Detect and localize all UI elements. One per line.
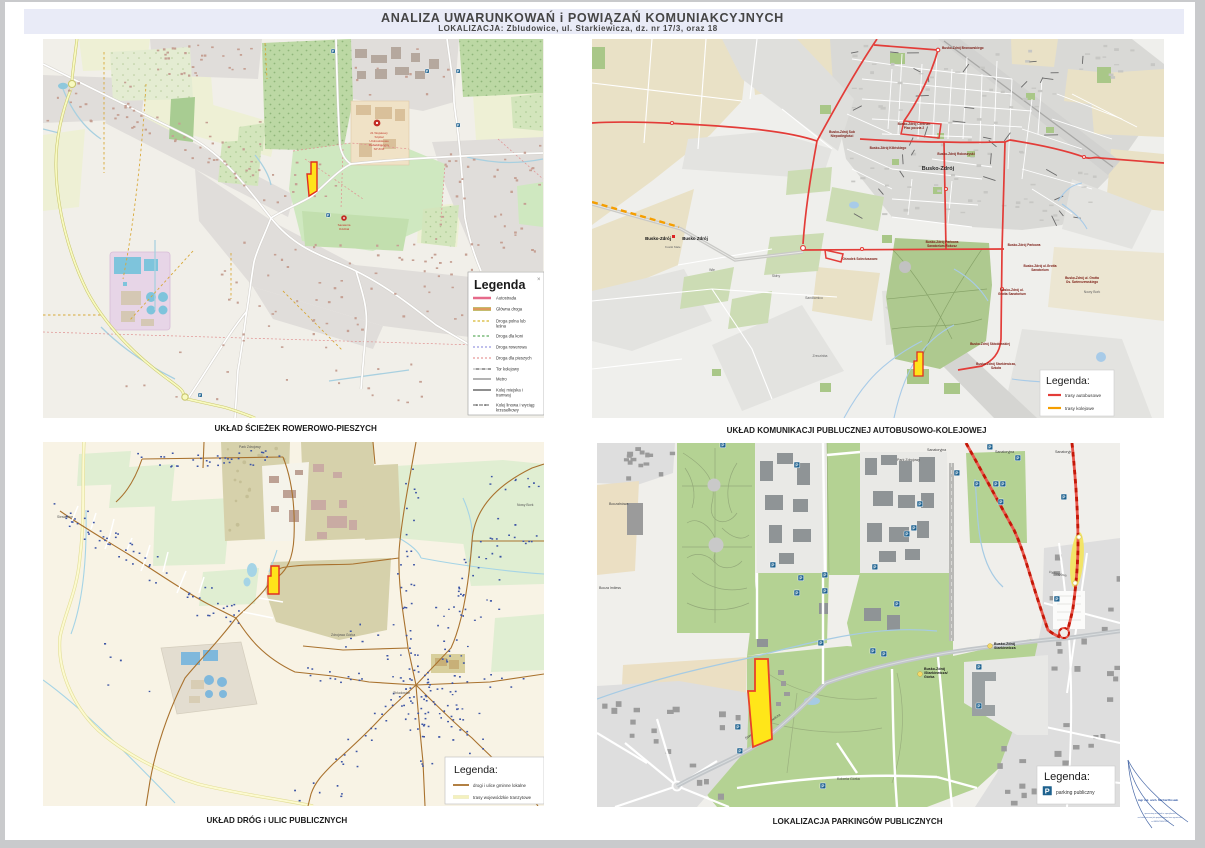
svg-text:Zreczinba: Zreczinba [813,354,828,358]
svg-text:Droga dla pieszych: Droga dla pieszych [496,356,532,361]
svg-text:drogi i ulice gminne lokalne: drogi i ulice gminne lokalne [473,783,527,788]
svg-text:P: P [905,532,908,537]
svg-text:Zdrojowa Górka: Zdrojowa Górka [331,633,355,637]
svg-text:Legenda:: Legenda: [1046,375,1090,387]
svg-text:Skłny: Skłny [772,274,781,278]
svg-text:P: P [823,573,826,578]
svg-text:Górka: Górka [924,675,935,679]
svg-text:trasy kolejowe: trasy kolejowe [1065,406,1095,411]
svg-text:mgr inż. arch. Michał Rosało: mgr inż. arch. Michał Rosało [1138,798,1179,802]
svg-text:Busko-Zdrój Rokoszyski: Busko-Zdrój Rokoszyski [937,152,974,156]
svg-text:Busko-Zdrój Skłodowskiej: Busko-Zdrój Skłodowskiej [970,342,1010,346]
svg-text:P: P [999,500,1002,505]
svg-text:Oddział: Oddział [339,227,350,231]
svg-text:krzesełkowy: krzesełkowy [496,408,520,413]
svg-text:Os. Świerczewskiego: Os. Świerczewskiego [1066,279,1098,284]
svg-text:P: P [819,641,822,646]
svg-text:Legenda: Legenda [474,278,526,292]
svg-text:P: P [799,576,802,581]
svg-text:Szkoła: Szkoła [991,366,1001,370]
svg-text:Sanatorium: Sanatorium [1031,268,1049,272]
svg-text:leśna: leśna [496,324,507,329]
svg-text:Busko-Zdrój Kilińskiego: Busko-Zdrój Kilińskiego [870,146,907,150]
svg-text:Grotta Sanatorium: Grotta Sanatorium [998,292,1026,296]
svg-text:Busko Zdrój: Busko Zdrój [682,236,708,241]
svg-text:P: P [895,602,898,607]
svg-text:Sandłamico: Sandłamico [805,296,823,300]
svg-text:parking publiczny: parking publiczny [1056,790,1095,796]
svg-text:uprawniony architekt o specjal: uprawniony architekt o specjalności [1144,812,1176,815]
svg-text:P: P [882,652,885,657]
svg-text:Niepodległości: Niepodległości [831,134,854,138]
svg-text:Busko-Zdrój Bronowskiego: Busko-Zdrój Bronowskiego [942,46,984,50]
svg-text:Kolonia Górka: Kolonia Górka [837,777,860,781]
svg-text:P: P [1016,456,1019,461]
svg-text:P: P [873,565,876,570]
svg-text:P: P [912,526,915,531]
svg-text:Busko-Zdrój Parkowa: Busko-Zdrój Parkowa [1008,243,1041,247]
svg-text:P: P [795,591,798,596]
svg-text:P: P [1045,786,1050,795]
svg-text:P: P [1001,482,1004,487]
svg-text:×: × [537,277,541,283]
svg-text:P: P [955,471,958,476]
svg-text:Główna droga: Główna droga [496,307,523,312]
svg-text:Busko-Zdrój: Busko-Zdrój [645,236,671,241]
svg-text:Tor kolejowy: Tor kolejowy [496,367,520,372]
svg-text:P: P [738,749,741,754]
svg-text:Sanatorium Rokosz: Sanatorium Rokosz [927,244,957,248]
svg-text:Droga rowerowa: Droga rowerowa [496,345,527,350]
svg-text:Legenda:: Legenda: [1044,771,1090,783]
svg-text:Nowy Bork: Nowy Bork [517,503,534,507]
svg-text:tramwaj: tramwaj [496,393,511,398]
svg-text:P: P [821,784,824,789]
svg-text:Park Zdrojowy: Park Zdrojowy [239,445,261,449]
svg-text:Sanatoryjna: Sanatoryjna [995,450,1014,454]
svg-text:Metro: Metro [496,377,507,382]
svg-text:P: P [1055,597,1058,602]
svg-text:P: P [795,463,798,468]
svg-text:P: P [823,589,826,594]
svg-text:P: P [975,482,978,487]
svg-text:P: P [771,563,774,568]
svg-text:Sanatoryjna: Sanatoryjna [1055,450,1074,454]
svg-text:Ośrodek Solecłuszowo: Ośrodek Solecłuszowo [843,257,878,261]
svg-text:Bocza lmiless: Bocza lmiless [599,586,621,590]
svg-text:trasy autobusowe: trasy autobusowe [1065,393,1101,398]
svg-text:Busko-Zdrój: Busko-Zdrój [922,166,955,172]
svg-text:P: P [988,445,991,450]
svg-text:Sanatoryjna: Sanatoryjna [927,448,946,452]
svg-text:Park Zdrojowy: Park Zdrojowy [897,458,920,462]
svg-text:P: P [918,502,921,507]
svg-text:P: P [736,725,739,730]
svg-text:SP ZOZ: SP ZOZ [374,147,385,151]
svg-text:Plac poczta 2: Plac poczta 2 [904,126,924,130]
svg-text:Włe: Włe [709,268,715,272]
svg-text:Autostrada: Autostrada [496,296,517,301]
svg-text:P: P [1062,495,1065,500]
svg-text:architektonicznej do projektow: architektonicznej do projektowania bez o… [1138,816,1183,819]
svg-text:Starkiewicza: Starkiewicza [994,646,1017,650]
svg-text:P: P [977,704,980,709]
svg-text:Boczałnówa: Boczałnówa [609,502,628,506]
svg-text:Siesławice: Siesławice [57,515,73,519]
svg-text:Legenda:: Legenda: [454,764,498,776]
svg-text:P: P [721,443,724,448]
svg-text:P: P [977,665,980,670]
svg-text:P: P [994,482,997,487]
svg-text:w ZA/09/2009/2017: w ZA/09/2009/2017 [1151,820,1169,823]
svg-text:Droga dla koni: Droga dla koni [496,334,523,339]
svg-text:Nowy Bork: Nowy Bork [1084,290,1101,294]
svg-text:Kostki Małe: Kostki Małe [665,245,681,249]
svg-text:Zbłudowice: Zbłudowice [393,691,410,695]
svg-text:P: P [871,649,874,654]
svg-text:trasy wojewódzkie tranzytowe: trasy wojewódzkie tranzytowe [473,795,532,800]
